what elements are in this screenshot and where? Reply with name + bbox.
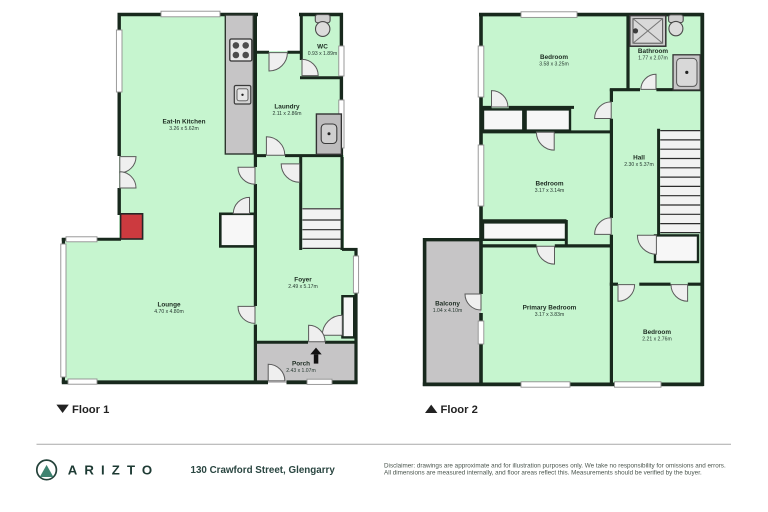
svg-text:3.17 x 3.83m: 3.17 x 3.83m bbox=[535, 312, 564, 318]
svg-text:1.04 x 4.10m: 1.04 x 4.10m bbox=[433, 308, 462, 314]
svg-text:All dimensions are measured in: All dimensions are measured internally, … bbox=[384, 469, 702, 476]
svg-text:Disclaimer: drawings are appro: Disclaimer: drawings are approximate and… bbox=[384, 462, 726, 469]
svg-text:Primary Bedroom: Primary Bedroom bbox=[523, 305, 577, 312]
svg-text:1.77 x 2.07m: 1.77 x 2.07m bbox=[638, 56, 667, 62]
svg-text:2.49 x 5.17m: 2.49 x 5.17m bbox=[288, 284, 317, 290]
svg-text:Porch: Porch bbox=[292, 361, 310, 368]
svg-text:Floor 2: Floor 2 bbox=[441, 404, 478, 416]
svg-text:Laundry: Laundry bbox=[274, 104, 300, 111]
svg-text:WC: WC bbox=[317, 44, 328, 51]
svg-text:Foyer: Foyer bbox=[294, 277, 312, 284]
svg-text:Lounge: Lounge bbox=[157, 302, 181, 309]
svg-text:ARIZTO: ARIZTO bbox=[68, 462, 159, 477]
svg-text:130 Crawford Street, Glengarry: 130 Crawford Street, Glengarry bbox=[191, 465, 336, 476]
svg-text:2.30 x 5.37m: 2.30 x 5.37m bbox=[624, 162, 653, 168]
svg-text:3.26 x 5.62m: 3.26 x 5.62m bbox=[169, 126, 198, 132]
svg-text:3.58 x 3.25m: 3.58 x 3.25m bbox=[539, 62, 568, 68]
svg-text:3.17 x 3.14m: 3.17 x 3.14m bbox=[535, 188, 564, 194]
svg-text:Eat-In Kitchen: Eat-In Kitchen bbox=[163, 118, 206, 125]
svg-text:Hall: Hall bbox=[633, 155, 645, 162]
svg-text:Bedroom: Bedroom bbox=[540, 54, 568, 61]
svg-text:Bedroom: Bedroom bbox=[535, 181, 563, 188]
svg-text:Bedroom: Bedroom bbox=[643, 329, 671, 336]
svg-text:4.70 x 4.80m: 4.70 x 4.80m bbox=[154, 309, 183, 315]
svg-text:Balcony: Balcony bbox=[435, 301, 460, 308]
svg-text:Floor 1: Floor 1 bbox=[72, 404, 109, 416]
svg-text:2.11 x 2.86m: 2.11 x 2.86m bbox=[272, 111, 301, 117]
svg-text:2.21 x 2.76m: 2.21 x 2.76m bbox=[642, 337, 671, 343]
svg-text:2.43 x 1.07m: 2.43 x 1.07m bbox=[286, 368, 315, 374]
svg-text:Bathroom: Bathroom bbox=[638, 48, 668, 55]
svg-text:0.93 x 1.89m: 0.93 x 1.89m bbox=[308, 51, 337, 57]
